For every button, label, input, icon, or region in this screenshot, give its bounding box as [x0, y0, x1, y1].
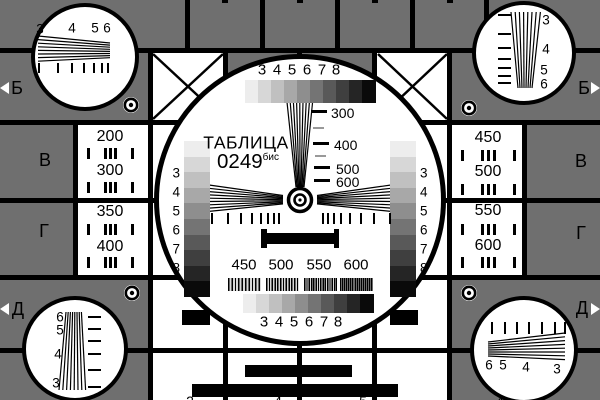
reference-bar-center: [266, 233, 334, 244]
tick-mark: [541, 322, 543, 334]
definition-ticks: [481, 224, 484, 235]
definition-ticks: [131, 224, 134, 235]
grid-line-vertical: [522, 120, 527, 280]
grayscale-step-bottom: [360, 294, 374, 313]
bottom-edge-fragment: 5: [359, 394, 367, 400]
grayscale-step-left-column: [184, 266, 210, 282]
right-arrow-d-icon: [591, 303, 600, 315]
definition-ticks: [131, 257, 134, 268]
grayscale-step-right-column: [390, 235, 416, 251]
tick-mark: [333, 213, 335, 224]
wedge-dash: [314, 166, 330, 169]
grayscale-step-top: [297, 80, 311, 103]
grayscale-label-top: 6: [303, 63, 311, 78]
grayscale-step-bottom: [256, 294, 270, 313]
corner-circle-bottom-left: [22, 296, 128, 400]
tick-mark: [340, 213, 342, 224]
black-square-left: [182, 310, 210, 325]
definition-ticks: [513, 184, 516, 195]
grayscale-step-top: [310, 80, 324, 103]
corner-circle-bottom-right: [470, 296, 578, 400]
definition-ticks: [493, 184, 496, 195]
definition-cell-value: 600: [475, 238, 502, 254]
definition-ticks: [493, 150, 496, 161]
grayscale-step-bottom: [295, 294, 309, 313]
grayscale-step-left-column: [184, 172, 210, 188]
tick-mark: [498, 82, 511, 84]
tick-mark: [57, 63, 59, 73]
frequency-grating: [266, 278, 299, 291]
definition-ticks: [513, 150, 516, 161]
grayscale-step-bottom: [347, 294, 361, 313]
grid-line-vertical: [335, 0, 340, 48]
frequency-grating: [228, 278, 261, 291]
top-edge-fragment: [297, 0, 303, 3]
definition-ticks: [109, 257, 112, 268]
definition-ticks: [104, 257, 107, 268]
grayscale-step-bottom: [321, 294, 335, 313]
corner-label-tl: 5: [91, 21, 99, 35]
definition-ticks: [114, 148, 117, 159]
reference-bar-cap: [261, 229, 267, 248]
grid-line-vertical: [447, 48, 452, 400]
tick-mark: [251, 213, 253, 224]
grid-line-vertical: [148, 48, 153, 400]
column-label-left: 6: [172, 223, 180, 237]
grayscale-step-bottom: [282, 294, 296, 313]
tick-mark: [260, 213, 262, 224]
edge-letter-left: Б: [11, 79, 23, 97]
definition-ticks: [481, 257, 484, 268]
corner-label-tl: 4: [68, 21, 76, 35]
grayscale-step-right-column: [390, 157, 416, 173]
tick-mark: [88, 316, 101, 318]
tick-mark: [88, 328, 101, 330]
definition-ticks: [114, 182, 117, 193]
grayscale-label-bottom: 3: [260, 315, 268, 330]
definition-ticks: [461, 184, 464, 195]
grayscale-label-top: 7: [318, 63, 326, 78]
grayscale-label-top: 8: [332, 63, 340, 78]
grayscale-step-right-column: [390, 250, 416, 266]
edge-letter-right: Д: [576, 299, 588, 317]
corner-label-br: 5: [499, 358, 507, 372]
definition-cell-value: 300: [97, 163, 124, 179]
definition-ticks: [481, 150, 484, 161]
top-edge-fragment: [222, 0, 228, 3]
wedge-dash-minor: [313, 127, 324, 129]
corner-label-tr: 3: [542, 13, 550, 27]
definition-ticks: [87, 148, 90, 159]
tick-mark: [349, 213, 351, 224]
grayscale-label-top: 5: [288, 63, 296, 78]
tv-test-card-0249: ТАБЛИЦА 0249бис 345678345678345678345678…: [0, 0, 600, 400]
wedge-dash: [314, 179, 330, 182]
definition-cell-value: 450: [475, 130, 502, 146]
grayscale-step-top: [284, 80, 298, 103]
definition-cell-value: 550: [475, 203, 502, 219]
grayscale-step-top: [271, 80, 285, 103]
grayscale-label-top: 3: [258, 63, 266, 78]
grayscale-step-right-column: [390, 281, 416, 297]
definition-cell-value: 500: [475, 164, 502, 180]
corner-label-tr: 4: [542, 42, 550, 56]
grayscale-step-top: [362, 80, 376, 103]
tick-mark: [273, 213, 275, 224]
corner-label-br: 6: [485, 358, 493, 372]
definition-ticks: [114, 224, 117, 235]
definition-cell-value: 400: [97, 239, 124, 255]
grayscale-step-right-column: [390, 219, 416, 235]
column-label-right: 7: [420, 242, 428, 256]
tick-mark: [498, 47, 511, 49]
grayscale-step-left-column: [184, 219, 210, 235]
left-arrow-d-icon: [0, 303, 9, 315]
definition-ticks: [104, 148, 107, 159]
corner-label-bl: 3: [52, 376, 60, 390]
tick-mark: [389, 213, 391, 224]
tick-mark: [83, 63, 85, 73]
column-label-right: 8: [420, 261, 428, 275]
tick-mark: [88, 353, 101, 355]
corner-circle-top-left: [31, 3, 139, 111]
left-arrow-b-icon: [0, 82, 9, 94]
definition-ticks: [109, 224, 112, 235]
column-label-left: 8: [172, 261, 180, 275]
grayscale-step-right-column: [390, 203, 416, 219]
tick-mark: [327, 213, 329, 224]
corner-label-br: 3: [553, 362, 561, 376]
definition-ticks: [493, 257, 496, 268]
edge-letter-right: Б: [578, 79, 590, 97]
grayscale-step-right-column: [390, 266, 416, 282]
wedge-dash: [313, 142, 329, 145]
definition-ticks: [513, 224, 516, 235]
wedge-dash: [311, 110, 327, 113]
definition-ticks: [87, 182, 90, 193]
tick-mark: [322, 213, 324, 224]
tick-mark: [564, 322, 566, 334]
grayscale-step-left-column: [184, 157, 210, 173]
definition-ticks: [87, 257, 90, 268]
tick-mark: [491, 322, 493, 334]
bottom-edge-fragment: 2: [186, 394, 194, 400]
grayscale-step-bottom: [334, 294, 348, 313]
tick-mark: [554, 322, 556, 334]
grayscale-label-bottom: 6: [305, 315, 313, 330]
frequency-grating: [304, 278, 337, 291]
right-arrow-b-icon: [591, 82, 600, 94]
grayscale-label-bottom: 4: [275, 315, 283, 330]
definition-ticks: [481, 184, 484, 195]
wedge-label: 300: [331, 106, 354, 120]
grayscale-step-top: [323, 80, 337, 103]
grayscale-label-top: 4: [273, 63, 281, 78]
grayscale-step-top: [258, 80, 272, 103]
corner-circle-top-right: [472, 1, 576, 105]
tick-mark: [498, 14, 511, 16]
grid-line-vertical: [410, 0, 415, 48]
tick-mark: [360, 213, 362, 224]
definition-ticks: [461, 257, 464, 268]
corner-label-bl: 5: [56, 323, 64, 337]
bottom-edge-fragment: 4: [496, 394, 504, 400]
definition-ticks: [487, 184, 490, 195]
grayscale-step-bottom: [243, 294, 257, 313]
tick-mark: [267, 213, 269, 224]
tick-mark: [227, 213, 229, 224]
grayscale-step-right-column: [390, 141, 416, 157]
bottom-edge-fragment: 4: [274, 394, 282, 400]
edge-letter-left: В: [39, 151, 51, 169]
tick-mark: [516, 322, 518, 334]
column-label-right: 5: [420, 204, 428, 218]
definition-ticks: [487, 224, 490, 235]
grayscale-step-left-column: [184, 281, 210, 297]
definition-ticks: [461, 224, 464, 235]
tick-mark: [504, 322, 506, 334]
frequency-label: 600: [343, 258, 368, 273]
card-code-number: 0249: [217, 150, 263, 173]
definition-ticks: [513, 257, 516, 268]
definition-ticks: [114, 257, 117, 268]
corner-label-tl: 3: [36, 22, 44, 36]
definition-ticks: [109, 148, 112, 159]
corner-label-tl: 6: [103, 21, 111, 35]
column-label-left: 7: [172, 242, 180, 256]
edge-letter-left: Г: [39, 222, 49, 240]
definition-ticks: [487, 257, 490, 268]
grid-line-vertical: [260, 0, 265, 48]
tick-mark: [107, 63, 109, 73]
frequency-label: 500: [268, 258, 293, 273]
tick-mark: [88, 340, 101, 342]
definition-ticks: [104, 182, 107, 193]
card-code-suffix: бис: [263, 152, 279, 163]
bottom-bar-short: [245, 365, 352, 377]
corner-label-bl: 4: [54, 347, 62, 361]
reference-bar-cap: [334, 229, 340, 248]
frequency-label: 550: [306, 258, 331, 273]
top-edge-fragment: [447, 0, 453, 3]
grayscale-label-bottom: 5: [290, 315, 298, 330]
tick-mark: [498, 33, 511, 35]
tick-mark: [498, 58, 511, 60]
tick-mark: [528, 322, 530, 334]
tick-mark: [88, 386, 101, 388]
definition-ticks: [109, 182, 112, 193]
top-edge-fragment: [372, 0, 378, 3]
grayscale-step-right-column: [390, 172, 416, 188]
tick-mark: [38, 63, 40, 73]
grid-line-vertical: [185, 0, 190, 48]
tick-mark: [101, 63, 103, 73]
corner-label-tr: 5: [540, 63, 548, 77]
grayscale-step-left-column: [184, 235, 210, 251]
wedge-dash-minor: [315, 155, 326, 157]
tick-mark: [71, 63, 73, 73]
frequency-label: 450: [231, 258, 256, 273]
corner-label-tr: 6: [540, 77, 548, 91]
column-label-right: 3: [420, 166, 428, 180]
tick-mark: [88, 369, 101, 371]
definition-ticks: [131, 182, 134, 193]
grayscale-step-top: [349, 80, 363, 103]
tick-mark: [240, 213, 242, 224]
definition-ticks: [461, 150, 464, 161]
column-label-right: 4: [420, 185, 428, 199]
edge-letter-right: Г: [576, 224, 586, 242]
black-square-right: [390, 310, 418, 325]
grayscale-step-bottom: [308, 294, 322, 313]
frequency-grating: [340, 278, 373, 291]
grayscale-label-bottom: 8: [334, 315, 342, 330]
tick-mark: [373, 213, 375, 224]
definition-ticks: [493, 224, 496, 235]
grid-line-vertical: [73, 120, 78, 280]
column-label-left: 4: [172, 185, 180, 199]
column-label-left: 5: [172, 204, 180, 218]
tick-mark: [211, 213, 213, 224]
corner-label-br: 4: [522, 360, 530, 374]
grayscale-step-left-column: [184, 250, 210, 266]
edge-letter-left: Д: [12, 300, 24, 318]
definition-ticks: [87, 224, 90, 235]
wedge-label: 600: [336, 175, 359, 189]
definition-ticks: [131, 148, 134, 159]
definition-cell-value: 350: [97, 204, 124, 220]
grayscale-step-bottom: [269, 294, 283, 313]
definition-cell-value: 200: [97, 129, 124, 145]
column-label-right: 6: [420, 223, 428, 237]
tick-mark: [93, 63, 95, 73]
tick-mark: [498, 67, 511, 69]
grayscale-label-bottom: 7: [320, 315, 328, 330]
card-code: 0249бис: [217, 152, 279, 173]
column-label-left: 3: [172, 166, 180, 180]
tick-mark: [498, 75, 511, 77]
grayscale-step-left-column: [184, 203, 210, 219]
tick-mark: [278, 213, 280, 224]
grayscale-step-top: [245, 80, 259, 103]
definition-ticks: [487, 150, 490, 161]
grayscale-step-top: [336, 80, 350, 103]
grayscale-step-left-column: [184, 188, 210, 204]
definition-ticks: [104, 224, 107, 235]
edge-letter-right: В: [575, 152, 587, 170]
grayscale-step-right-column: [390, 188, 416, 204]
wedge-label: 400: [334, 138, 357, 152]
